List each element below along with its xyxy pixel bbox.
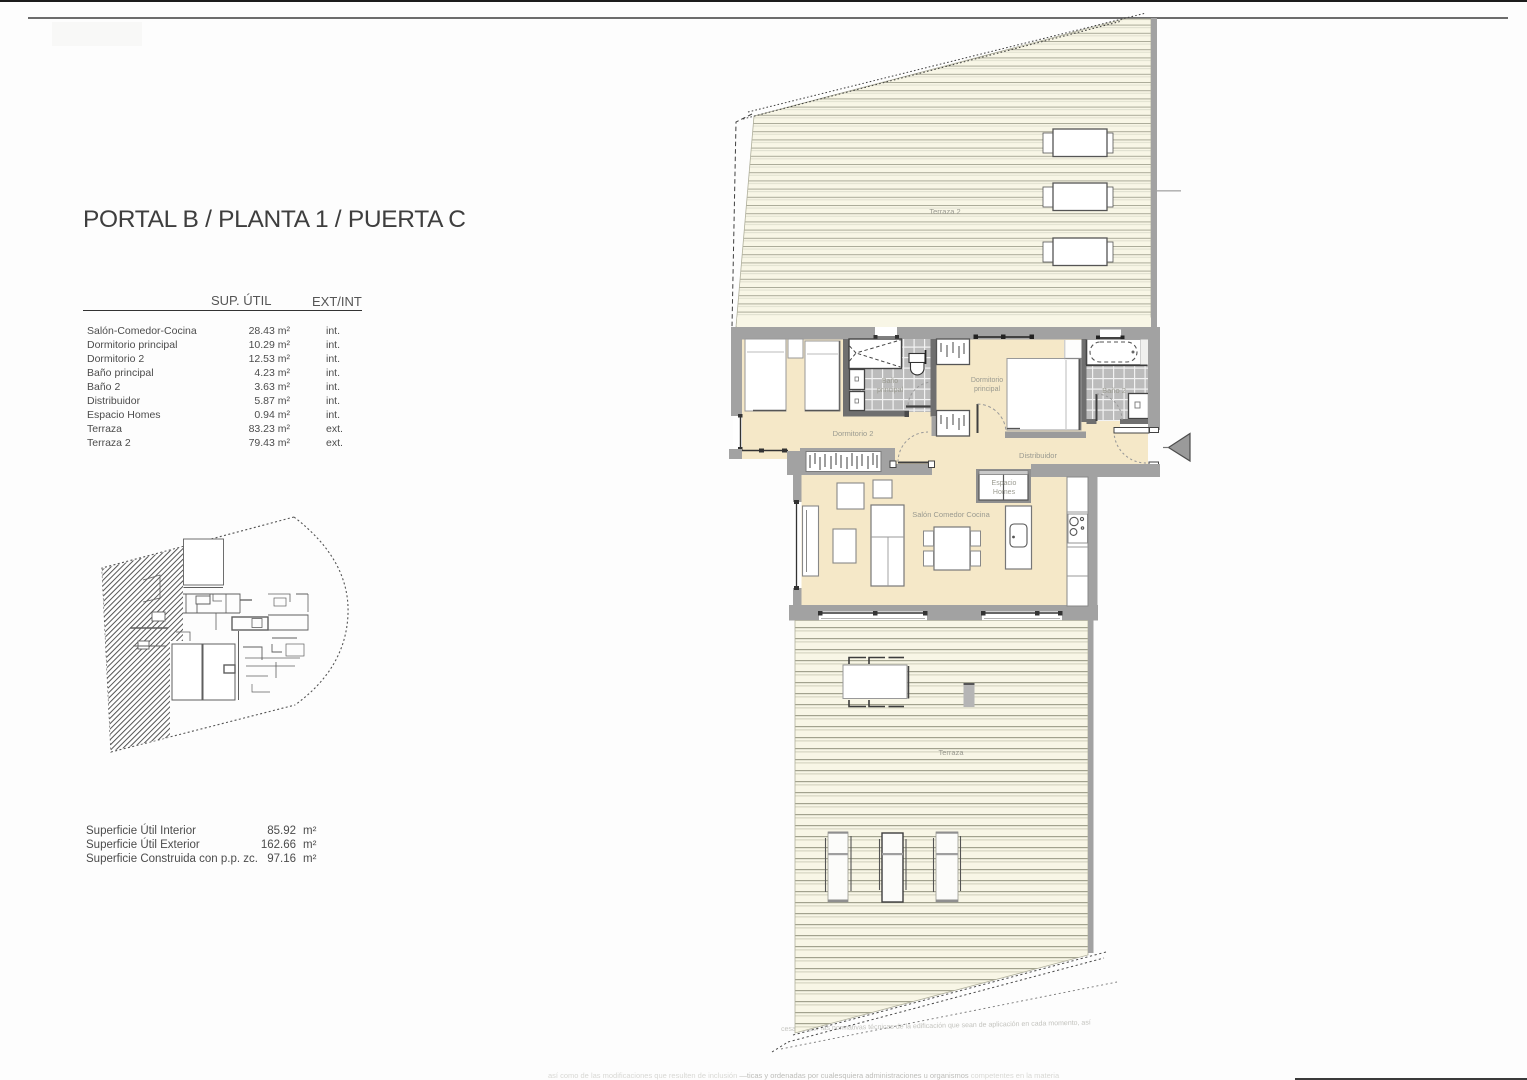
svg-text:Distribuidor: Distribuidor [1019,451,1057,460]
svg-text:Dormitorio: Dormitorio [971,377,1003,384]
svg-text:Homes: Homes [993,489,1016,496]
svg-text:Baño: Baño [882,378,898,385]
svg-text:Terraza 2: Terraza 2 [929,207,960,216]
svg-text:Espacio: Espacio [992,480,1017,487]
svg-text:Dormitorio 2: Dormitorio 2 [833,429,874,438]
svg-text:principal: principal [877,387,904,394]
svg-text:Terraza: Terraza [938,748,964,757]
svg-text:Salón Comedor Cocina: Salón Comedor Cocina [912,510,990,519]
svg-text:Baño 2: Baño 2 [1102,386,1126,395]
svg-text:principal: principal [974,386,1001,393]
